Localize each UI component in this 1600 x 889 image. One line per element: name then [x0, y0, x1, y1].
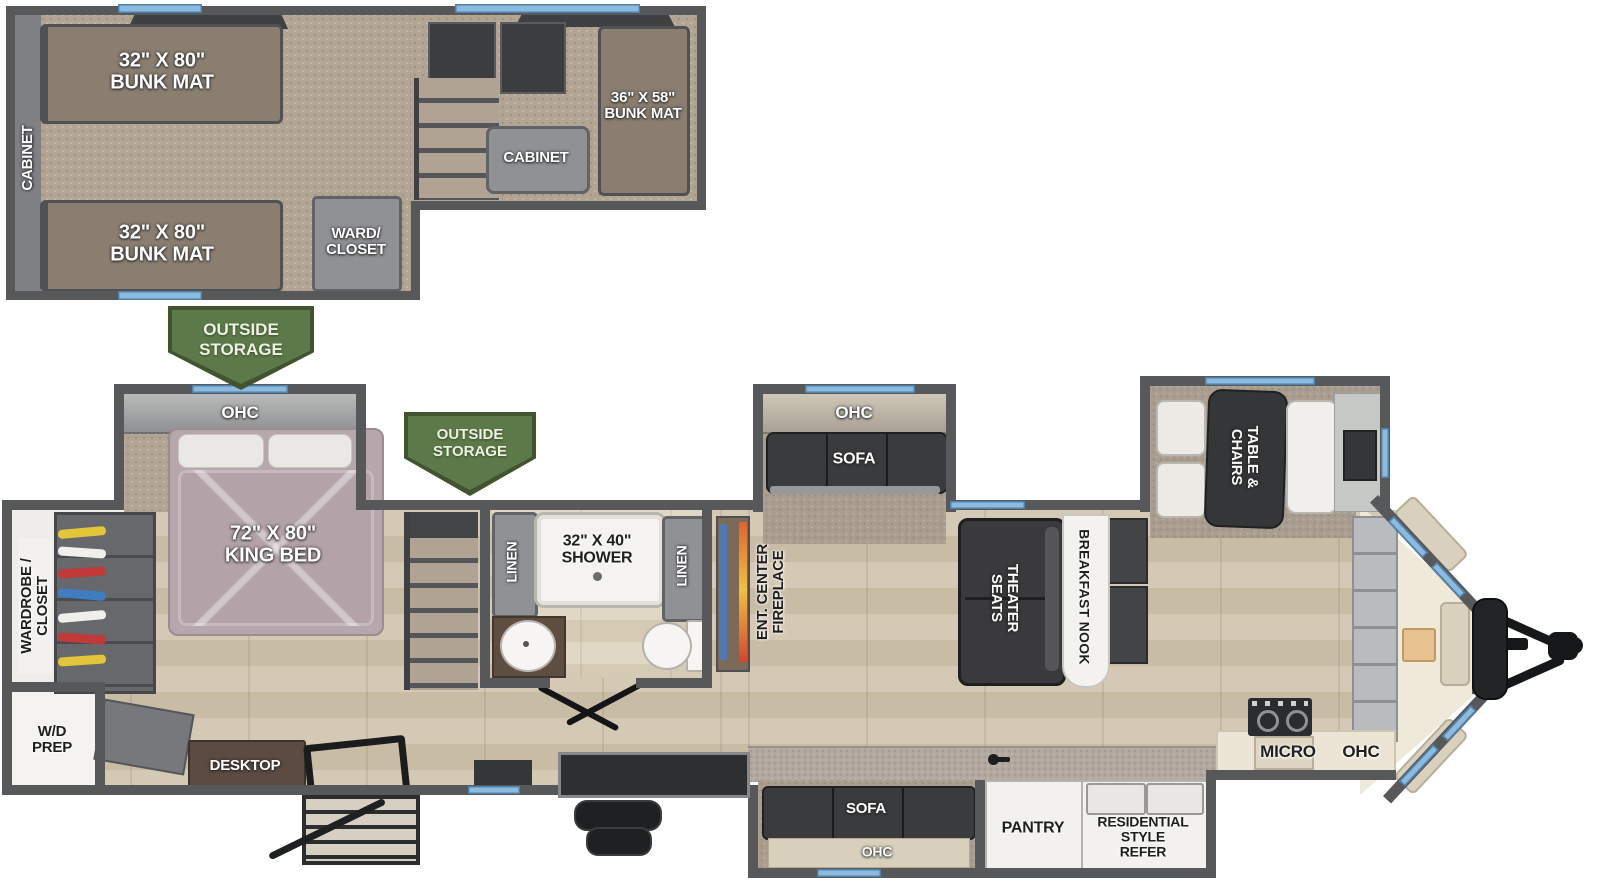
wall	[114, 384, 124, 510]
main-stairs	[408, 538, 478, 690]
pillow	[268, 434, 352, 468]
banner-label: OUTSIDE STORAGE	[168, 320, 314, 359]
entry-door	[468, 786, 520, 794]
wall	[12, 682, 105, 692]
window	[1205, 377, 1315, 385]
label-kitchen-ohc: OHC	[1342, 743, 1379, 761]
outside-storage-banner: OUTSIDE STORAGE	[404, 412, 536, 496]
sink-faucet-spout	[997, 757, 1010, 762]
window	[455, 4, 640, 13]
window	[950, 501, 1025, 509]
burner	[1286, 710, 1308, 732]
label-ent-center: ENT. CENTER FIREPLACE	[755, 544, 787, 640]
label-micro: MICRO	[1260, 743, 1316, 761]
cooktop	[1248, 698, 1312, 736]
wall	[1216, 770, 1396, 780]
label-sofa: SOFA	[833, 450, 876, 467]
seat-backs	[1045, 527, 1059, 671]
kitchen-cabinet	[1108, 586, 1148, 664]
entry-step	[586, 827, 652, 856]
label-linen-left: LINEN	[504, 541, 519, 582]
wall	[753, 384, 763, 512]
label-bunk-top: 32" X 80" BUNK MAT	[110, 50, 214, 93]
propane-tank-cover	[1472, 598, 1508, 700]
window	[118, 291, 202, 300]
sofa-cushion-divider	[826, 434, 828, 492]
hitch-ball	[1566, 637, 1583, 654]
label-sofa-ohc: OHC	[835, 404, 872, 422]
label-theater-seats: THEATER SEATS	[988, 564, 1020, 632]
wall	[1140, 376, 1150, 512]
wall	[946, 384, 956, 512]
label-desktop: DESKTOP	[210, 758, 281, 774]
outside-storage-banner: OUTSIDE STORAGE	[168, 306, 314, 390]
label-pantry: PANTRY	[1002, 819, 1065, 836]
label-breakfast-nook: BREAKFAST NOOK	[1076, 529, 1091, 665]
wall	[697, 6, 706, 210]
wall	[702, 510, 712, 688]
wall	[6, 6, 15, 300]
wall	[356, 384, 366, 510]
stair-rail	[404, 512, 410, 690]
label-refer: RESIDENTIAL STYLE REFER	[1097, 814, 1188, 859]
wall	[636, 678, 712, 688]
wall	[2, 500, 114, 510]
label-linen-right: LINEN	[674, 545, 689, 586]
entry-mat	[474, 760, 532, 786]
label-table-chairs: TABLE & CHAIRS	[1228, 426, 1260, 488]
dinette-chair	[1156, 462, 1206, 518]
label-bottom-sofa: SOFA	[846, 801, 886, 817]
burner	[1257, 710, 1279, 732]
fireplace	[739, 522, 747, 662]
wall	[6, 6, 420, 15]
wall	[2, 500, 12, 795]
label-bedroom-ohc: OHC	[221, 404, 258, 422]
wall	[6, 291, 420, 300]
front-table	[1402, 628, 1436, 662]
window	[817, 869, 881, 877]
toilet	[642, 622, 692, 670]
wall	[420, 201, 706, 210]
banner-label: OUTSIDE STORAGE	[404, 426, 536, 461]
dinette-chair	[1156, 400, 1206, 456]
front-bench-cushion	[1440, 602, 1470, 686]
label-ward-closet: WARD/ CLOSET	[326, 226, 386, 258]
label-shower: 32" X 40" SHOWER	[562, 533, 633, 568]
dinette-bench	[1286, 400, 1338, 514]
refer-door	[1086, 783, 1146, 815]
window	[1381, 428, 1389, 478]
loft-opening	[428, 22, 496, 80]
wall	[1206, 770, 1216, 878]
label-bunk-bottom: 32" X 80" BUNK MAT	[110, 222, 214, 265]
label-bunk-right: 36" X 58" BUNK MAT	[604, 90, 681, 122]
tv	[719, 524, 727, 660]
tv	[1343, 430, 1377, 481]
label-king-bed: 72" X 80" KING BED	[225, 523, 321, 566]
sofa-cushion-divider	[832, 788, 834, 838]
shower-drain	[593, 572, 602, 581]
wall	[480, 678, 550, 688]
wall	[748, 785, 758, 878]
wall	[480, 510, 490, 688]
wall	[975, 780, 985, 868]
sofa-front-edge	[770, 486, 940, 494]
kitchen-cabinet	[1108, 518, 1148, 584]
stair-landing	[408, 512, 478, 538]
wall	[411, 201, 420, 300]
kitchen-counter	[748, 746, 1216, 782]
label-bottom-sofa-ohc: OHC	[862, 844, 893, 859]
cooktop-knobs	[1252, 701, 1308, 706]
floorplan-canvas: OUTSIDE STORAGE OUTSIDE STORAGE	[0, 0, 1600, 889]
sink-drain	[523, 641, 529, 647]
label-loft-cabinet: CABINET	[503, 150, 568, 166]
sofa-cushion-divider	[886, 434, 888, 492]
wardrobe-closet-unit	[54, 512, 156, 694]
label-wd-prep: W/D PREP	[32, 724, 72, 756]
label-wardrobe-closet: WARDROBE / CLOSET	[19, 558, 51, 654]
wall	[95, 682, 105, 795]
refer-door	[1146, 783, 1204, 815]
pillow	[178, 434, 264, 468]
kitchen-cabinet-run	[1352, 516, 1398, 742]
label-loft-side-cabinet: CABINET	[20, 125, 36, 190]
storage-hatch	[558, 752, 750, 798]
loft-opening	[500, 22, 566, 94]
wall	[366, 500, 753, 510]
sofa-cushion-divider	[902, 788, 904, 838]
window	[805, 385, 915, 393]
window	[118, 4, 202, 13]
